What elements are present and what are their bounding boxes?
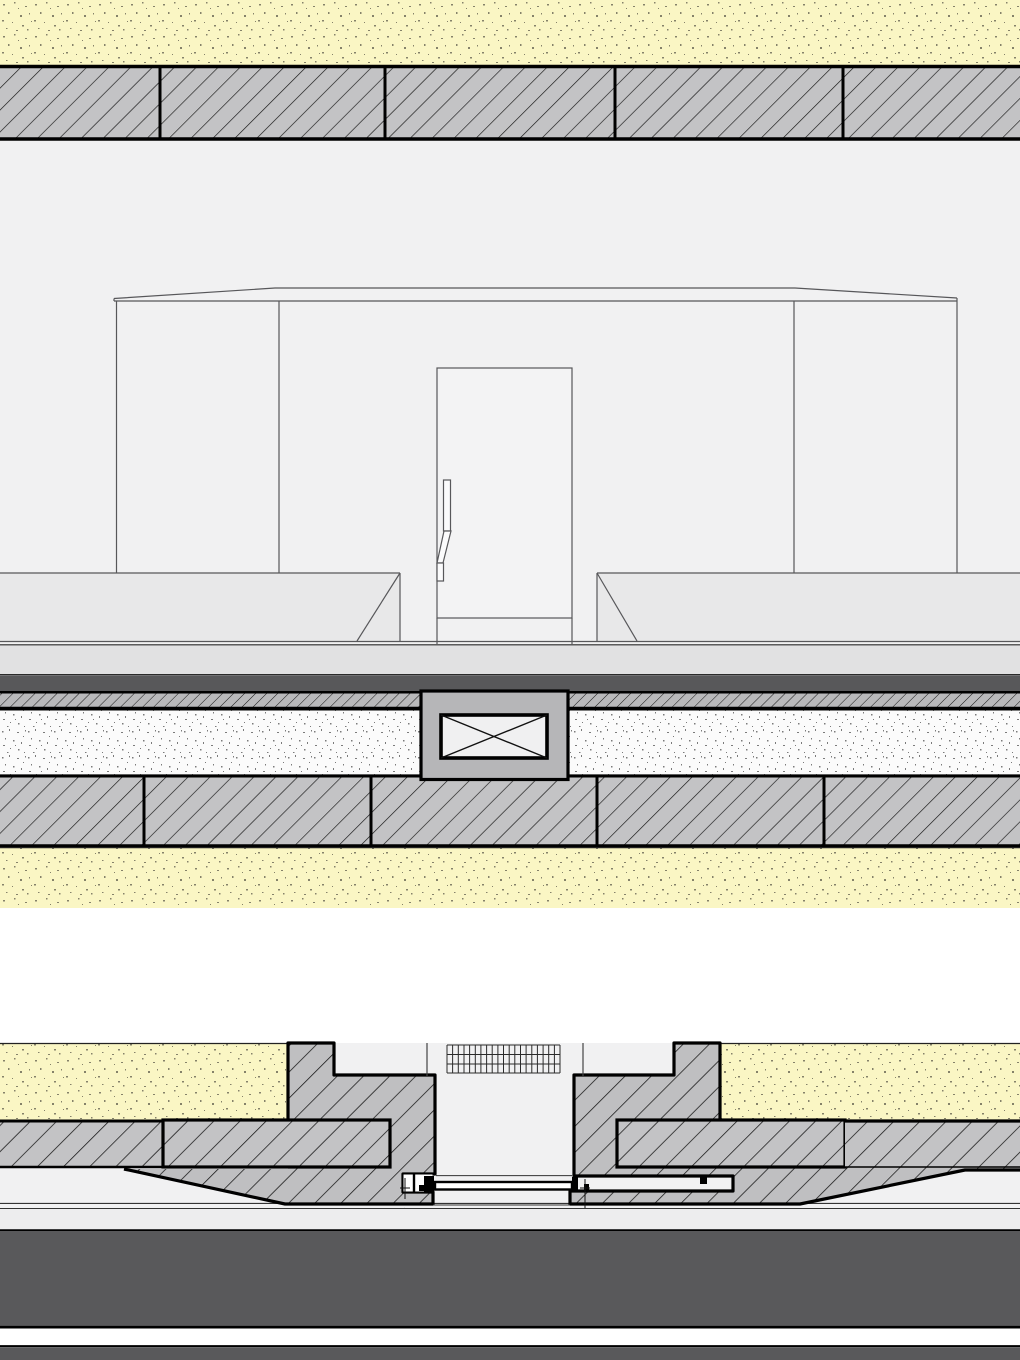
bench-right xyxy=(597,573,1020,641)
door-elevation xyxy=(437,368,572,644)
bench-left xyxy=(0,573,400,641)
subsoil-insulation-band xyxy=(0,848,1020,908)
floor-masonry-band xyxy=(0,777,1020,846)
ceiling-insulation-layer xyxy=(0,0,1020,66)
architectural-drawing-sheet xyxy=(0,0,1020,1360)
ceiling-structure xyxy=(0,0,1020,140)
floor-finish-band xyxy=(0,645,1020,675)
floor-structure xyxy=(0,645,1020,908)
duct-cross-symbol xyxy=(441,715,547,758)
screed-band xyxy=(0,1209,1020,1231)
floor-duct-block xyxy=(421,691,568,780)
ventilation-grille xyxy=(447,1045,560,1073)
insulation-left xyxy=(0,1043,288,1120)
sheet-gap xyxy=(0,908,1020,1043)
base-band xyxy=(0,1348,1020,1360)
waterproofing-membrane xyxy=(0,676,1020,692)
structural-slab xyxy=(0,1231,1020,1327)
insulation-right xyxy=(720,1043,1020,1120)
cad-drawing-canvas xyxy=(0,0,1020,1360)
slab-joint-gap xyxy=(0,1329,1020,1346)
ceiling-masonry-band xyxy=(0,66,1020,140)
closer-stop-block xyxy=(700,1177,707,1184)
grille-slats xyxy=(447,1045,560,1073)
